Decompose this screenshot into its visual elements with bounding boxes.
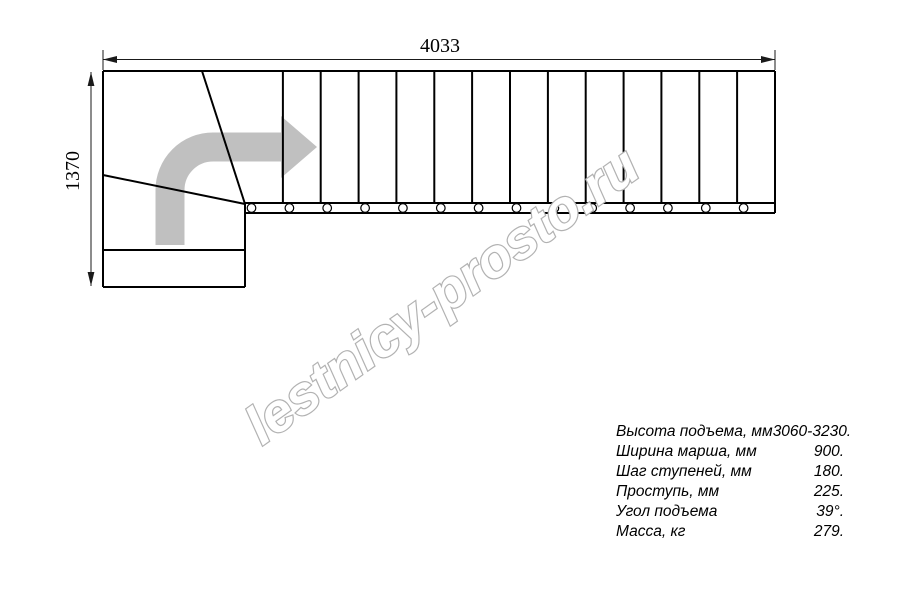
stringer-bolt-circle (626, 204, 635, 213)
spec-label: Высота подъема, мм (616, 422, 773, 442)
spec-value: 225. (814, 482, 844, 502)
width-dimension-label: 4033 (420, 35, 460, 57)
dim-arrow-down-icon (88, 272, 95, 286)
stringer-bolt-circle (474, 204, 483, 213)
spec-row-tread-depth: Проступь, мм 225. (616, 482, 844, 502)
stair-outline (103, 71, 775, 287)
spec-label: Ширина марша, мм (616, 442, 757, 462)
spec-value: 3060-3230. (773, 422, 851, 442)
spec-value: 180. (814, 462, 844, 482)
dim-arrow-left-icon (103, 56, 117, 63)
watermark-text: lestnicy-prosto.ru (234, 135, 650, 456)
tread-group (247, 71, 748, 212)
stair-plan-page: 4033 1370 lestnicy-prosto.ru Высота подъ… (0, 0, 900, 600)
spec-label: Масса, кг (616, 522, 685, 542)
stringer-bolt-circle (399, 204, 408, 213)
spec-row-rise-height: Высота подъема, мм 3060-3230. (616, 422, 844, 442)
spec-row-mass: Масса, кг 279. (616, 522, 844, 542)
spec-row-step-pitch: Шаг ступеней, мм 180. (616, 462, 844, 482)
stringer-bolt-circle (247, 204, 256, 213)
direction-arrow-head (281, 116, 317, 178)
spec-value: 279. (814, 522, 844, 542)
stringer-bolt-circle (285, 204, 294, 213)
height-dimension-label: 1370 (62, 151, 84, 191)
stringer-bolt-circle (361, 204, 370, 213)
spec-value: 900. (814, 442, 844, 462)
spec-label: Шаг ступеней, мм (616, 462, 752, 482)
dim-arrow-right-icon (761, 56, 775, 63)
stringer-bolt-circle (702, 204, 711, 213)
dim-arrow-up-icon (88, 72, 95, 86)
spec-value: 39°. (816, 502, 844, 522)
spec-label: Проступь, мм (616, 482, 719, 502)
stringer-bolt-circle (664, 204, 673, 213)
direction-arrow-icon (170, 116, 317, 245)
spec-row-flight-width: Ширина марша, мм 900. (616, 442, 844, 462)
stringer-bolt-circle (437, 204, 446, 213)
specs-table: Высота подъема, мм 3060-3230. Ширина мар… (616, 422, 844, 542)
spec-row-rise-angle: Угол подъема 39°. (616, 502, 844, 522)
stringer-bolt-circle (323, 204, 332, 213)
stringer-bolt-circle (739, 204, 748, 213)
direction-arrow-shaft (170, 147, 281, 245)
spec-label: Угол подъема (616, 502, 717, 522)
